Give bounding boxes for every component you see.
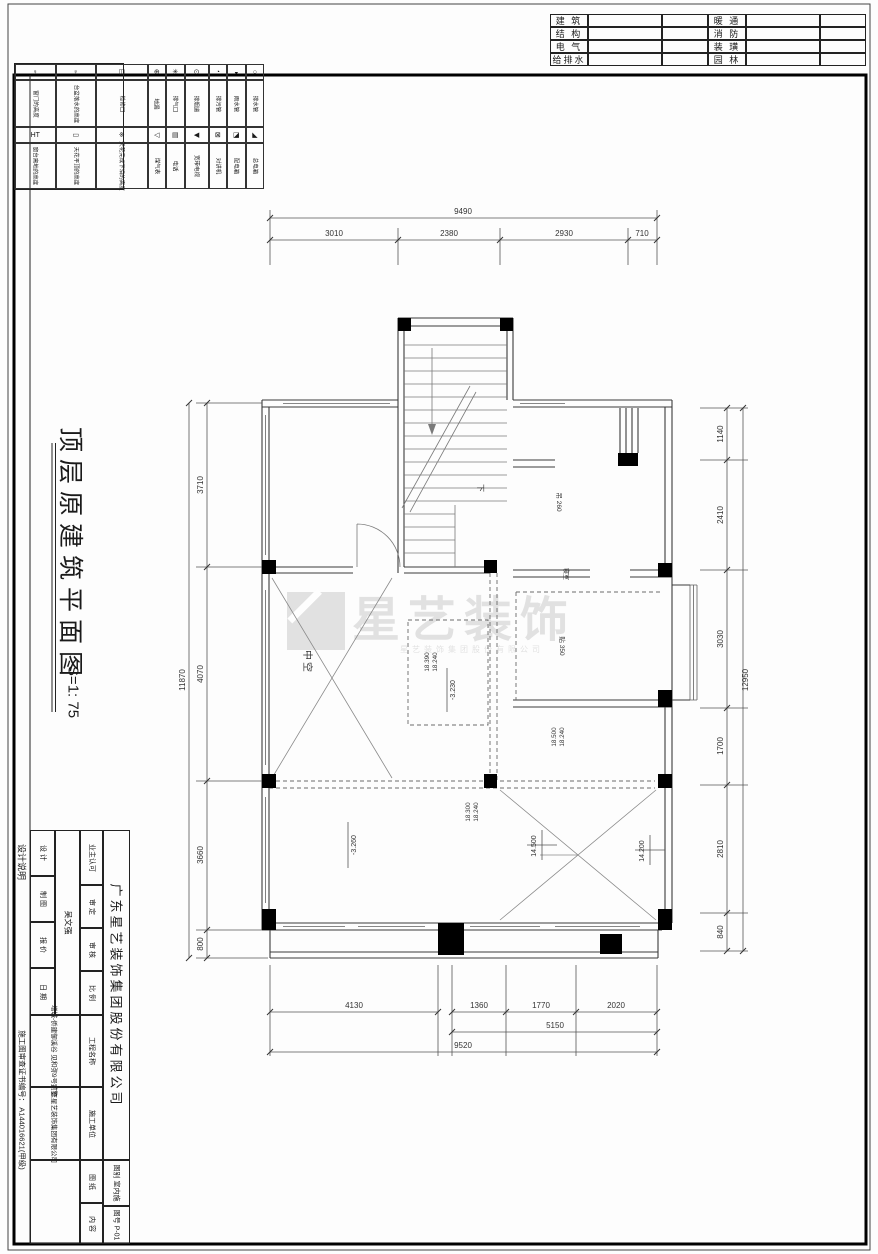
- project-value-cell: 增城-侨建御溪谷 见和弥9号别墅: [30, 1015, 80, 1087]
- discipline-blank: [662, 14, 708, 27]
- dim-top-seg0: 3010: [325, 229, 343, 238]
- certificate-number: 施工图审查证书编号： A144016621(甲级): [17, 1030, 28, 1170]
- legend-column: ♀台盆落水的高度▭天花平顶的高度: [56, 64, 97, 189]
- discipline-blank: [746, 53, 820, 66]
- discipline-blank: [820, 40, 866, 53]
- discipline-blank: [662, 40, 708, 53]
- columns: [262, 318, 672, 955]
- discipline-blank: [820, 53, 866, 66]
- discipline-label: 暖 通: [708, 14, 746, 27]
- discipline-blank: [588, 14, 662, 27]
- legend-label: 窗台离地的高度: [31, 147, 39, 186]
- legend-label: 煤气表: [153, 158, 161, 175]
- legend-symbol-icon: ◪: [227, 127, 246, 143]
- legend-symbol-icon: ▭: [56, 127, 97, 143]
- sheet-border: [8, 4, 870, 1250]
- dim-top-seg1: 2380: [440, 229, 458, 238]
- discipline-label: 消 防: [708, 27, 746, 40]
- legend-label: 排气口: [171, 95, 179, 112]
- dim-left-total: 11870: [178, 669, 187, 691]
- legend-column: ⊕地漏◁煤气表: [148, 64, 167, 189]
- legend-column: ○排水管◣总电箱: [246, 64, 265, 189]
- level-drop2: -3.260: [351, 835, 358, 855]
- legend-label: 天花平顶的高度: [72, 147, 80, 186]
- legend-column: ◒雨水管◪配电箱: [227, 64, 246, 189]
- legend-symbol-icon: ◀: [185, 127, 209, 143]
- legend-column: ♀窗门的高度HT窗台离地的高度: [15, 64, 56, 189]
- note-ceiling-f: 贴 350: [558, 636, 567, 656]
- discipline-label: 园 林: [708, 53, 746, 66]
- legend-column: ✳排气口▤电话: [166, 64, 185, 189]
- dim-right-seg0: 1140: [716, 425, 725, 443]
- discipline-blank: [746, 27, 820, 40]
- legend-label: 排烟道: [193, 95, 201, 112]
- legend-symbol-icon: ◁: [148, 127, 167, 143]
- level-18500: 18.500: [551, 727, 558, 747]
- legend-column: ◫检修口※天花完成下沿的高度: [96, 64, 148, 189]
- dim-bottom-subtotal: 5150: [546, 1021, 564, 1030]
- legend-symbol-icon: ▤: [166, 127, 185, 143]
- legend-label: 电话: [171, 160, 179, 171]
- legend-symbol-icon: ♀: [15, 64, 56, 80]
- level-18240b: 18.240: [559, 727, 566, 747]
- dim-left-seg2: 3660: [196, 846, 205, 864]
- staircase: [357, 345, 507, 567]
- dim-bottom-seg0: 4130: [345, 1001, 363, 1010]
- builder-label-cell: 施工单位: [80, 1087, 103, 1160]
- role-cell-design: 设 计: [30, 830, 55, 876]
- walls: [262, 318, 690, 958]
- discipline-blank: [746, 40, 820, 53]
- dashed-lines: [269, 573, 660, 788]
- legend-symbol-icon: ✳: [166, 64, 185, 80]
- dim-right-seg3: 1700: [716, 737, 725, 755]
- legend-column: ⊙排烟道◀宽带电视: [185, 64, 209, 189]
- discipline-label: 电 气: [550, 40, 588, 53]
- sheet-number-cell: 图号 P-01: [103, 1206, 130, 1244]
- discipline-label: 建 筑: [550, 14, 588, 27]
- legend-label: 检修口: [118, 95, 126, 112]
- dim-bottom-total: 9520: [454, 1041, 472, 1050]
- dim-top-seg2: 2930: [555, 229, 573, 238]
- legend-symbol-icon: ♀: [56, 64, 97, 80]
- category-cell: 图别 室内施: [103, 1160, 130, 1206]
- dim-left-seg3: 800: [196, 937, 205, 951]
- dim-bottom-seg3: 2020: [607, 1001, 625, 1010]
- check-cell-scale: 比 例: [80, 971, 103, 1015]
- level-drop1: -3.230: [450, 680, 457, 700]
- sheet-number-label: 图号: [113, 1210, 120, 1224]
- symbol-legend: ♀窗门的高度HT窗台离地的高度♀台盆落水的高度▭天花平顶的高度◫检修口※天花完成…: [14, 63, 124, 190]
- legend-label: 排污管: [214, 95, 222, 112]
- discipline-blank: [820, 14, 866, 27]
- category-value: 室内施: [113, 1180, 120, 1201]
- legend-symbol-icon: ⊠: [209, 127, 228, 143]
- discipline-blank: [820, 27, 866, 40]
- design-note-label: 设计说明: [16, 844, 29, 880]
- owner-approve-cell: 业主认可: [80, 830, 103, 885]
- project-label-cell: 工程名称: [80, 1015, 103, 1087]
- legend-symbol-icon: ◒: [227, 64, 246, 80]
- level-18240a: 18.240: [432, 652, 439, 672]
- content-label-cell: 内 容: [80, 1203, 103, 1244]
- content-value-cell: [30, 1160, 80, 1244]
- sheet-label-cell: 图 纸: [80, 1160, 103, 1203]
- legend-label: 窗门的高度: [31, 90, 39, 118]
- dim-right-seg5: 840: [716, 925, 725, 939]
- sheet-title: 顶层原建筑平面图: [54, 427, 90, 683]
- level-18390: 18.390: [424, 652, 431, 672]
- sheet-scale: S=1: 75: [65, 666, 82, 718]
- legend-symbol-icon: ○: [246, 64, 265, 80]
- note-ceiling-c: 吊 260: [555, 492, 563, 512]
- role-cell-quote: 报 价: [30, 922, 55, 968]
- check-cell-approve: 审 定: [80, 885, 103, 928]
- dim-bottom-seg1: 1360: [470, 1001, 488, 1010]
- note-wall: 寝室: [562, 568, 570, 580]
- dim-left-seg0: 3710: [196, 476, 205, 494]
- level-14500: 14.500: [531, 835, 538, 857]
- legend-column: ◔排污管⊠对讲机: [209, 64, 228, 189]
- sheet-number-value: P-01: [113, 1226, 120, 1241]
- dim-right-total: 12950: [741, 668, 750, 691]
- legend-label: 排水管: [251, 95, 259, 112]
- discipline-blank: [746, 14, 820, 27]
- windows: [266, 404, 698, 927]
- legend-label: 台盆落水的高度: [72, 84, 80, 123]
- legend-symbol-icon: ⊙: [185, 64, 209, 80]
- legend-label: 对讲机: [214, 158, 222, 175]
- legend-label: 天花完成下沿的高度: [118, 141, 126, 191]
- dim-right-seg2: 3030: [716, 630, 725, 648]
- dim-top-total: 9490: [454, 207, 472, 216]
- legend-symbol-icon: ◫: [96, 64, 148, 80]
- door-swing: [357, 524, 400, 567]
- stair-down-arrow: [428, 424, 436, 435]
- discipline-blank: [588, 53, 662, 66]
- legend-label: 总电箱: [251, 158, 259, 175]
- discipline-table: 建 筑 暖 通 结 构 消 防 电 气 装 璜 给排水 园 林: [550, 14, 866, 66]
- legend-label: 雨水管: [232, 95, 240, 112]
- role-cell-draft: 制 图: [30, 876, 55, 922]
- level-14200: 14.200: [639, 840, 646, 862]
- discipline-label: 装 璜: [708, 40, 746, 53]
- diagonals: [272, 578, 665, 920]
- legend-label: 配电箱: [232, 158, 240, 175]
- discipline-label: 结 构: [550, 27, 588, 40]
- legend-symbol-icon: ⊕: [148, 64, 167, 80]
- discipline-blank: [588, 40, 662, 53]
- legend-symbol-icon: HT: [15, 127, 56, 143]
- check-cell-review: 审 核: [80, 928, 103, 971]
- drawing-sheet: 星艺装饰 星艺装饰集团股份有限公司: [0, 0, 878, 1254]
- discipline-blank: [662, 27, 708, 40]
- category-label: 图别: [113, 1165, 120, 1179]
- company-name-cell: 广东星艺装饰集团股份有限公司: [103, 830, 130, 1160]
- dim-right-seg1: 2410: [716, 506, 725, 524]
- dim-left-seg1: 4070: [196, 665, 205, 683]
- dim-top-seg3: 710: [635, 229, 649, 238]
- stair-down-label: 下: [476, 484, 485, 492]
- builder-value-cell: 广东星艺装饰集团有限公司: [30, 1087, 80, 1160]
- level-18240c: 18.240: [473, 802, 480, 822]
- legend-symbol-icon: ◔: [209, 64, 228, 80]
- discipline-blank: [588, 27, 662, 40]
- legend-label: 宽带电视: [193, 155, 201, 177]
- discipline-label: 给排水: [550, 53, 588, 66]
- level-18300: 18.300: [465, 802, 472, 822]
- dim-right-seg4: 2810: [716, 840, 725, 858]
- legend-symbol-icon: ◣: [246, 127, 265, 143]
- room-void-label: 中空: [301, 650, 314, 674]
- discipline-blank: [662, 53, 708, 66]
- dim-bottom-seg2: 1770: [532, 1001, 550, 1010]
- designer-name-cell: 吴文强: [55, 830, 80, 1015]
- legend-label: 地漏: [153, 98, 161, 109]
